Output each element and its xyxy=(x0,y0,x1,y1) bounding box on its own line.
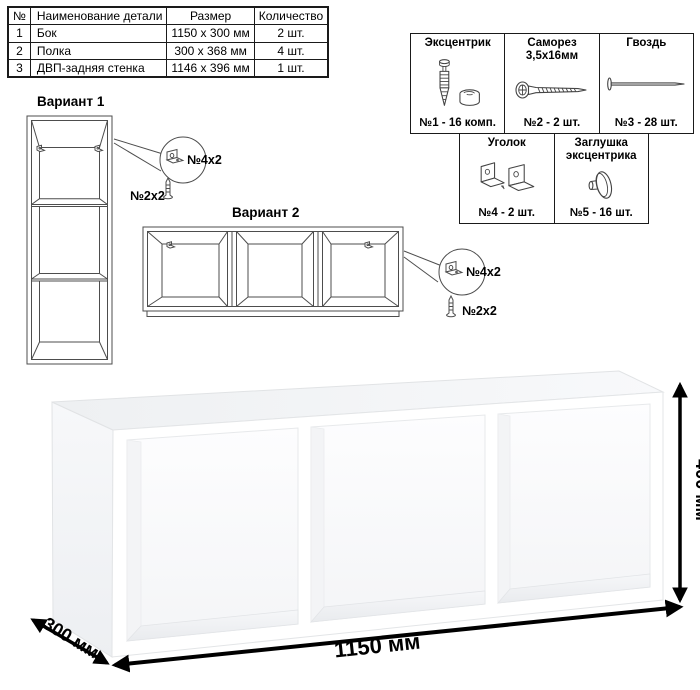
screw-qty-label: №2х2 xyxy=(130,189,165,203)
compartment-opening xyxy=(127,428,298,641)
shelf-left-face xyxy=(52,402,113,657)
hardware-count-label: №2 - 2 шт. xyxy=(524,117,580,129)
variant2-title: Вариант 2 xyxy=(232,205,299,220)
corner-bracket-mini-icon xyxy=(95,145,103,151)
nail-icon xyxy=(605,76,687,92)
width-dimension-label: 1150 мм xyxy=(333,629,422,663)
hardware-box-row2: Уголок №4 - 2 шт. Заглушка эксцентрика xyxy=(459,133,649,224)
hardware-item-cam-cap: Заглушка эксцентрика №5 - 16 шт. xyxy=(554,134,649,223)
height-dimension-label: 400 мм xyxy=(692,459,700,521)
screw-mini-icon xyxy=(164,178,173,199)
screw-icon xyxy=(513,73,591,107)
header-size: Размер xyxy=(167,7,254,25)
variant2-callout: №4х2 №2х2 xyxy=(404,249,501,318)
callout-line xyxy=(114,139,163,171)
screw-qty-label: №2х2 xyxy=(462,304,497,318)
screw-mini-icon xyxy=(447,296,456,317)
hardware-item-eccentric: Эксцентрик №1 - 16 комп. xyxy=(411,34,504,133)
hardware-count-label: №4 - 2 шт. xyxy=(479,207,535,219)
horizontal-shelf-outline xyxy=(143,227,403,317)
assembly-instruction-sheet: № Наименование детали Размер Количество … xyxy=(0,0,700,690)
hardware-count-label: №3 - 28 шт. xyxy=(615,117,678,129)
cam-cap-icon xyxy=(583,165,619,205)
hardware-count-label: №1 - 16 комп. xyxy=(419,117,496,129)
variant1-callout: №4х2 №2х2 xyxy=(114,137,222,203)
hardware-title: Уголок xyxy=(488,137,526,150)
callout-line xyxy=(404,251,442,282)
hardware-title: Гвоздь xyxy=(626,37,666,50)
corner-bracket-mini-icon xyxy=(167,242,175,248)
table-header-row: № Наименование детали Размер Количество xyxy=(8,7,328,25)
header-num: № xyxy=(8,7,30,25)
hardware-title: Заглушка xyxy=(575,137,628,150)
variant2-drawing: №4х2 №2х2 xyxy=(138,220,510,324)
variant1-title: Вариант 1 xyxy=(37,94,104,109)
parts-table: № Наименование детали Размер Количество … xyxy=(7,6,329,78)
hardware-item-screw: Саморез 3,5х16мм №2 - 2 шт. xyxy=(504,34,598,133)
hardware-box-row1: Эксцентрик №1 - 16 комп. Само xyxy=(410,33,694,134)
compartment-opening xyxy=(311,415,485,622)
vertical-shelf-outline xyxy=(27,116,112,364)
hardware-title: Эксцентрик xyxy=(425,37,491,50)
assembled-shelf-3d-view: 1150 мм 400 мм 300 мм xyxy=(20,360,700,690)
bracket-qty-label: №4х2 xyxy=(187,153,222,167)
corner-bracket-mini-icon xyxy=(37,145,45,151)
table-row: 2 Полка 300 x 368 мм 4 шт. xyxy=(8,42,328,60)
corner-bracket-mini-icon xyxy=(365,242,373,248)
eccentric-cam-icon xyxy=(424,56,492,112)
hardware-title: Саморез xyxy=(527,37,576,50)
hardware-item-corner-bracket: Уголок №4 - 2 шт. xyxy=(460,134,554,223)
compartment-opening xyxy=(498,404,650,603)
header-name: Наименование детали xyxy=(30,7,167,25)
hardware-item-nail: Гвоздь №3 - 28 шт. xyxy=(599,34,693,133)
shelf-body xyxy=(52,371,663,657)
header-qty: Количество xyxy=(254,7,328,25)
table-row: 3 ДВП-задняя стенка 1146 x 396 мм 1 шт. xyxy=(8,60,328,78)
hardware-count-label: №5 - 16 шт. xyxy=(570,207,633,219)
corner-bracket-icon xyxy=(475,157,539,201)
bracket-qty-label: №4х2 xyxy=(466,265,501,279)
table-row: 1 Бок 1150 x 300 мм 2 шт. xyxy=(8,25,328,43)
